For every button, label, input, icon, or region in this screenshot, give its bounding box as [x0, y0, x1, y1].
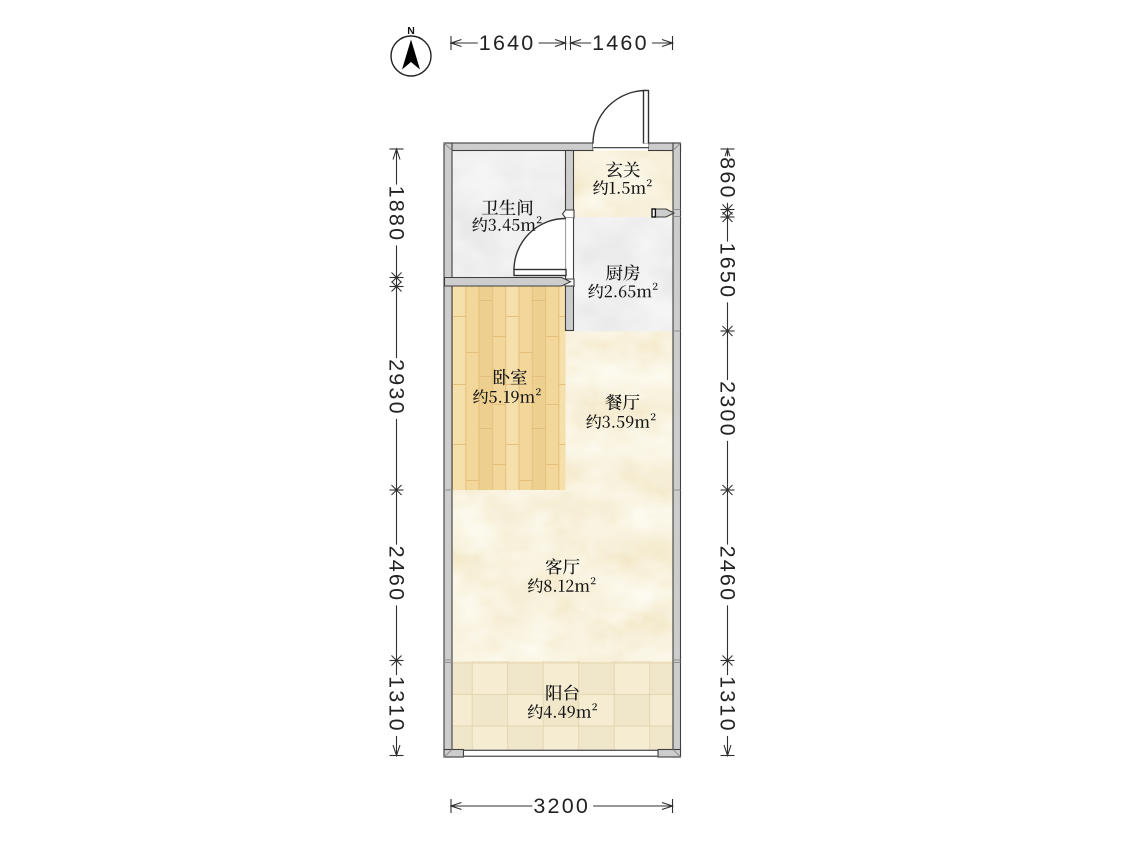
svg-text:1640: 1640	[479, 31, 536, 55]
svg-text:2460: 2460	[385, 546, 409, 603]
svg-text:2460: 2460	[716, 546, 740, 603]
svg-text:1310: 1310	[385, 676, 409, 733]
svg-text:2300: 2300	[716, 381, 740, 438]
svg-text:3200: 3200	[533, 794, 590, 818]
svg-text:1310: 1310	[716, 676, 740, 733]
svg-text:2930: 2930	[385, 359, 409, 416]
svg-text:1460: 1460	[592, 31, 649, 55]
svg-text:860: 860	[716, 157, 740, 199]
svg-text:1880: 1880	[385, 186, 409, 243]
svg-text:N: N	[407, 25, 415, 37]
svg-text:1650: 1650	[716, 243, 740, 300]
